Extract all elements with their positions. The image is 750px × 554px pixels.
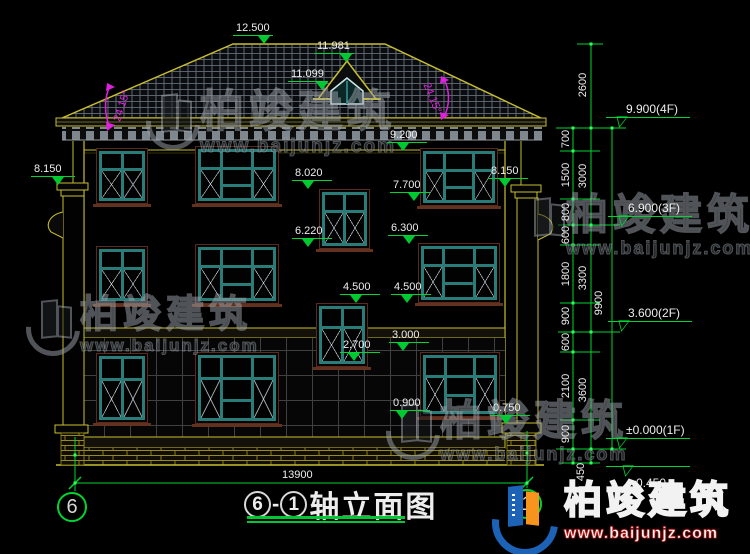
elevation-mark-stair3-head: 8.020 bbox=[295, 167, 323, 179]
level-flag-2f: 3.600(2F)▽ bbox=[608, 307, 698, 320]
elevation-mark-win3-head: 7.700 bbox=[393, 179, 421, 191]
level-triangle-icon: ▽ bbox=[616, 318, 628, 333]
dim-900a: 900 bbox=[560, 307, 572, 325]
dim-800: 800 bbox=[560, 203, 572, 221]
dim-3300: 3300 bbox=[577, 266, 589, 290]
dim-13900: 13900 bbox=[282, 469, 313, 481]
elevation-mark-stair3-sill: 6.220 bbox=[295, 225, 323, 237]
brand-name: 柏竣建筑 bbox=[564, 482, 732, 522]
brand-logo: 柏竣建筑 www.baijunjz.com bbox=[490, 482, 732, 548]
title-dash: - bbox=[272, 491, 279, 517]
axis-bubble-6: 6 bbox=[57, 492, 87, 522]
elevation-mark-pilaster-left: 8.150 bbox=[34, 163, 62, 175]
dim-3600: 3600 bbox=[577, 378, 589, 402]
pilaster-left bbox=[48, 141, 88, 465]
elevation-mark-pilaster-right: 8.150 bbox=[491, 165, 519, 177]
brand-logo-icon bbox=[490, 482, 556, 548]
elevation-mark-win1-head: 3.000 bbox=[392, 329, 420, 341]
elevation-mark-stair2-sill: 2.700 bbox=[343, 339, 371, 351]
window-2f-left bbox=[96, 246, 148, 304]
window-3f-right bbox=[420, 148, 498, 206]
window-1f-center-left bbox=[195, 352, 279, 424]
elevation-mark-win1-sill: 0.900 bbox=[393, 397, 421, 409]
drawing-title: 6 - 1 轴立面图 bbox=[244, 482, 437, 526]
title-name: 轴立面图 bbox=[309, 482, 437, 526]
window-2f-center-left bbox=[195, 244, 279, 304]
level-flag-1f: ±0.000(1F)▽ bbox=[606, 424, 696, 437]
window-3f-left bbox=[96, 148, 148, 204]
elevation-mark-stair2-head: 4.500 bbox=[343, 281, 371, 293]
elevation-mark-dormer-ridge: 11.981 bbox=[317, 40, 350, 52]
title-underline-thin bbox=[247, 521, 405, 523]
elevation-mark-ridge: 12.500 bbox=[236, 22, 270, 34]
dim-3000: 3000 bbox=[577, 164, 589, 188]
dim-2100: 2100 bbox=[560, 374, 572, 398]
stair-window-2f bbox=[316, 303, 368, 367]
elevation-mark-eave-trim: 9.200 bbox=[390, 129, 418, 141]
elevation-drawing-canvas: 柏竣建筑 www.baijunjz.com 柏竣建筑 www.baijunjz.… bbox=[0, 0, 750, 554]
dim-900b: 900 bbox=[560, 425, 572, 443]
dim-450: 450 bbox=[575, 463, 587, 481]
window-1f-right bbox=[420, 352, 500, 417]
dim-9900: 9900 bbox=[593, 291, 605, 315]
level-triangle-icon: ▽ bbox=[614, 435, 626, 450]
level-triangle-icon: ▽ bbox=[614, 114, 626, 129]
elevation-mark-pedestal: 0.750 bbox=[493, 402, 521, 414]
brand-site: www.baijunjz.com bbox=[564, 526, 732, 542]
title-axis-from: 6 bbox=[244, 491, 271, 518]
window-3f-center-left bbox=[195, 146, 279, 204]
dim-1800: 1800 bbox=[560, 262, 572, 286]
stair-window-3f bbox=[319, 189, 370, 249]
dim-1500: 1500 bbox=[560, 163, 572, 187]
dim-700: 700 bbox=[560, 130, 572, 148]
window-1f-left bbox=[96, 353, 148, 423]
level-triangle-icon: ▽ bbox=[620, 463, 632, 478]
elevation-mark-win2-sill: 4.500 bbox=[394, 281, 422, 293]
dim-2600: 2600 bbox=[577, 73, 589, 97]
dim-600a: 600 bbox=[560, 226, 572, 244]
title-axis-to: 1 bbox=[280, 491, 307, 518]
elevation-mark-dormer-eave: 11.099 bbox=[291, 68, 324, 80]
level-flag-3f: 6.900(3F)▽ bbox=[608, 202, 698, 215]
dim-600b: 600 bbox=[560, 333, 572, 351]
elevation-mark-win3-sill: 6.300 bbox=[391, 222, 419, 234]
level-flag-4f: 9.900(4F)▽ bbox=[606, 103, 696, 116]
title-underline-thick bbox=[247, 516, 405, 519]
level-triangle-icon: ▽ bbox=[616, 213, 628, 228]
